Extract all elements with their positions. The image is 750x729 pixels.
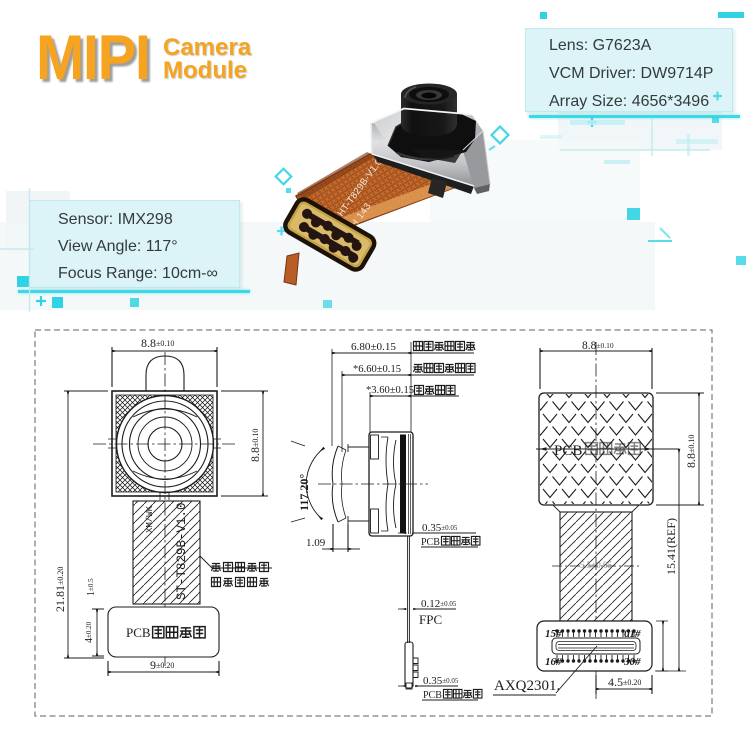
svg-text:21.81±0.20: 21.81±0.20 — [53, 567, 67, 612]
svg-text:0.12±0.05: 0.12±0.05 — [421, 598, 457, 610]
svg-text:PCB: PCB — [423, 690, 442, 701]
svg-text:XM/WK: XM/WK — [145, 505, 155, 533]
svg-text:5.5±0.05: 5.5±0.05 — [580, 560, 612, 570]
svg-text:9±0.20: 9±0.20 — [150, 658, 174, 672]
svg-text:15#: 15# — [545, 628, 562, 640]
svg-text:PCB: PCB — [421, 537, 440, 548]
svg-text:FPC: FPC — [419, 612, 442, 627]
svg-text:ST-T829B-V1.0: ST-T829B-V1.0 — [175, 502, 189, 600]
svg-text:0.35±0.05: 0.35±0.05 — [423, 675, 459, 687]
svg-text:8.8±0.10: 8.8±0.10 — [582, 340, 614, 352]
svg-text:PCB: PCB — [554, 443, 582, 459]
svg-text:15.41(REF): 15.41(REF) — [664, 518, 678, 575]
svg-text:PCB: PCB — [126, 625, 151, 640]
svg-text:4.5±0.20: 4.5±0.20 — [608, 675, 641, 689]
svg-text:30#: 30# — [623, 656, 641, 668]
svg-text:01#: 01# — [624, 628, 641, 640]
svg-text:6.80±0.15: 6.80±0.15 — [351, 341, 396, 353]
svg-text:8.8±0.10: 8.8±0.10 — [141, 336, 174, 350]
svg-text:8.8±0.10: 8.8±0.10 — [684, 435, 698, 468]
svg-text:16#: 16# — [545, 656, 562, 668]
svg-text:1.09: 1.09 — [306, 537, 326, 549]
svg-text:1±0.5: 1±0.5 — [86, 578, 97, 596]
svg-text:*6.60±0.15: *6.60±0.15 — [353, 363, 401, 375]
svg-text:117.20°: 117.20° — [297, 474, 311, 511]
svg-text:8.8±0.10: 8.8±0.10 — [248, 429, 262, 462]
svg-text:AXQ2301.: AXQ2301. — [494, 678, 560, 694]
svg-text:0.35±0.05: 0.35±0.05 — [422, 522, 458, 534]
svg-text:*3.60±0.15: *3.60±0.15 — [366, 384, 414, 396]
svg-text:4±0.20: 4±0.20 — [84, 621, 95, 643]
